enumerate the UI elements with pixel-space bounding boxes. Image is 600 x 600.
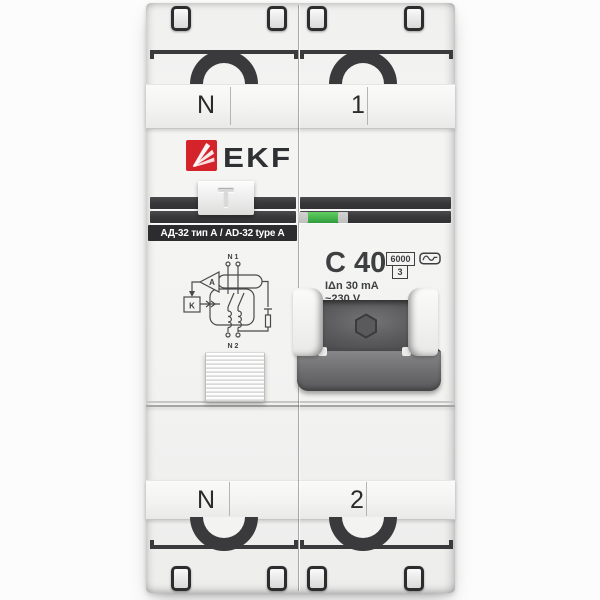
terminal-clamp-opening [148,517,298,561]
diagram-label-relay: K [189,302,195,311]
screw-terminal-hole [267,566,287,591]
din-circuit-breaker: N 1 EKF T [146,3,455,593]
ekf-logo [186,140,217,171]
mold-seam [367,87,368,125]
mold-seam [230,87,231,125]
handle-guard-right [408,288,438,356]
screw-terminal-hole [171,566,191,591]
terminal-clamp-opening [300,517,453,561]
terminal-label: N [191,91,221,120]
screw-terminal-hole [404,6,424,31]
wiring-diagram: N 1 A K N 2 [176,249,288,351]
mold-seam [366,482,367,516]
case-seam [146,405,455,407]
diagram-label-top: N 1 [228,254,239,261]
model-label-bar: АД-32 тип А / AD-32 type A [148,225,297,241]
test-handle-label: T [218,183,234,214]
product-photo: N 1 EKF T [0,0,600,600]
terminal-label: 2 [342,486,372,515]
diagram-label-bottom: N 2 [228,343,239,350]
hex-nut-icon [350,310,382,342]
model-label: АД-32 тип А / AD-32 type A [160,228,284,239]
residual-current-marking: IΔn 30 mA [325,280,379,292]
terminal-label: N [191,486,221,515]
indicator-end-tab [338,212,348,223]
brand-wordmark: EKF [223,142,292,174]
return-test-button [205,352,265,402]
terminal-clamp-opening [148,40,298,84]
type-a-sine-icon [419,252,441,265]
rocker-bar [300,197,451,209]
mold-seam [229,482,230,516]
handle-guard-left [293,288,323,356]
case-seam [146,401,455,403]
position-indicator-window [298,212,348,223]
indicator-green-light [308,212,338,223]
test-handle: T [198,181,254,215]
screw-terminal-hole [307,566,327,591]
breaking-capacity-box: 6000 [386,252,415,266]
screw-terminal-hole [267,6,287,31]
ekf-fan-icon [186,140,217,171]
rating-marking: C 40 [325,247,386,280]
energy-class-box: 3 [392,265,408,279]
terminal-label: 1 [343,91,373,120]
indicator-end-tab [298,212,308,223]
terminal-clamp-opening [300,40,453,84]
screw-terminal-hole [404,566,424,591]
diagram-label-amplifier: A [209,278,215,287]
screw-terminal-hole [171,6,191,31]
screw-terminal-hole [307,6,327,31]
